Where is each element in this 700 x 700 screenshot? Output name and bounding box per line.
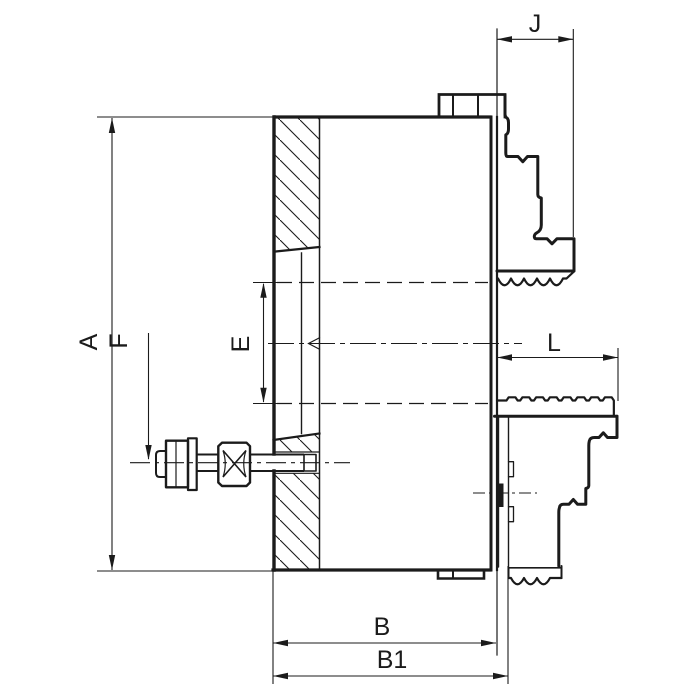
dimension-f	[145, 333, 151, 460]
centerlines	[130, 283, 537, 494]
bolt-hex-nut	[166, 441, 188, 488]
bottom-jaw	[495, 397, 618, 584]
label-b1: B1	[377, 646, 408, 674]
bottom-jaw-profile	[559, 416, 617, 566]
bottom-jaw-serrated-strip	[497, 397, 614, 415]
label-a: A	[75, 333, 103, 350]
label-b: B	[374, 613, 391, 641]
technical-drawing-canvas: A F E J L B B1	[0, 0, 700, 700]
top-jaw-serration	[498, 272, 574, 286]
bottom-jaw-foot-serration	[509, 578, 562, 584]
hatch-upper-block	[275, 118, 320, 252]
bolt-square-cross	[223, 451, 246, 478]
dim-f-arrow	[145, 445, 151, 460]
hatch-lower-block-b	[274, 473, 320, 570]
label-j: J	[529, 10, 542, 38]
bolt-end-cap	[156, 451, 166, 477]
top-jaw-profile	[497, 95, 574, 271]
chuck-bosses	[438, 95, 505, 579]
label-l: L	[547, 329, 561, 357]
label-f: F	[105, 333, 133, 348]
top-boss-dividers	[453, 95, 478, 118]
bolt-washer	[188, 438, 197, 490]
top-boss-outline	[439, 95, 505, 118]
chuck-section-drawing: A F E J L B B1	[0, 0, 700, 700]
bottom-jaw-key-block	[498, 484, 504, 508]
dimension-labels: A F E J L B B1	[75, 10, 561, 674]
bottom-jaw-key-lugs	[509, 462, 514, 522]
label-e: E	[227, 336, 255, 353]
top-jaw	[497, 95, 574, 285]
